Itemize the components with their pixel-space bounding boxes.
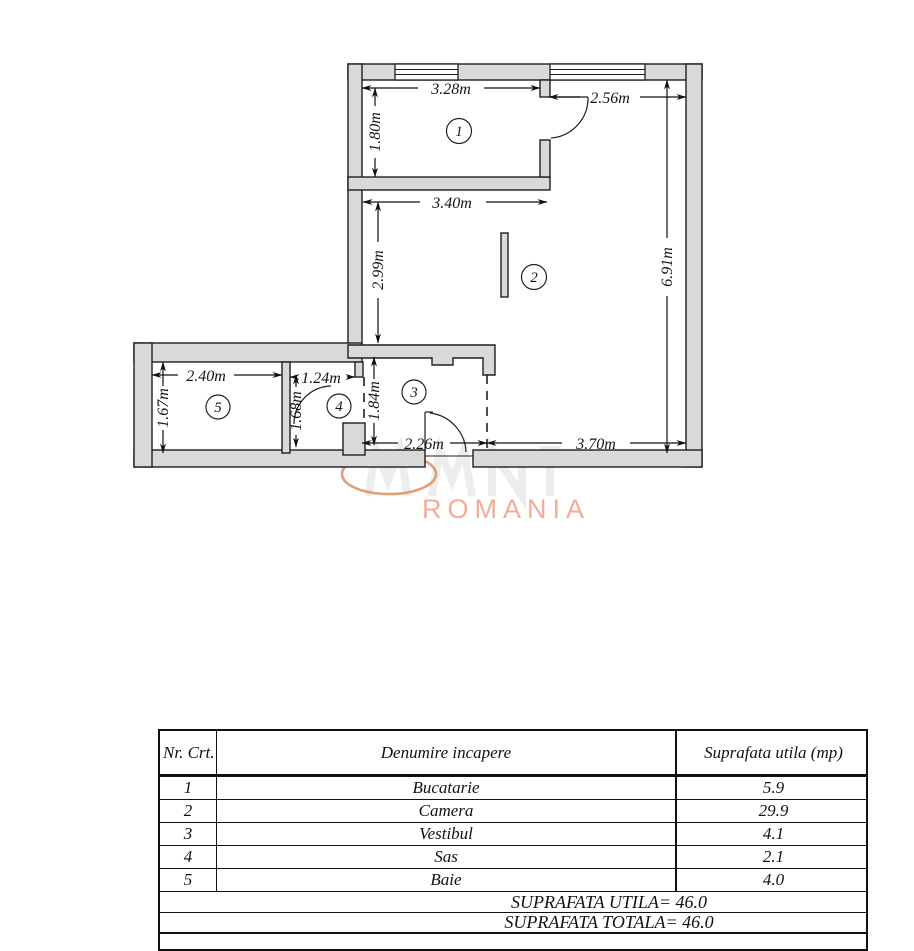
cell-name: Baie (217, 869, 677, 891)
cell-nr: 5 (160, 869, 217, 891)
room-label-2: 2 (522, 265, 547, 290)
door-kitchen (549, 97, 588, 138)
cell-nr: 4 (160, 846, 217, 868)
room-label-3: 3 (402, 380, 426, 404)
cell-name: Bucatarie (217, 777, 677, 799)
dim-vestibule-width: 2.26m (404, 436, 444, 453)
watermark-romania-text: ROMANIA (422, 494, 590, 524)
svg-text:3: 3 (409, 385, 418, 401)
header-area: Suprafata utila (mp) (677, 731, 870, 774)
cell-area: 4.0 (677, 869, 870, 891)
dim-living-width: 3.40m (431, 195, 472, 212)
dimension-lines (152, 80, 686, 453)
dim-sas-width: 1.24m (301, 370, 341, 387)
cell-name: Vestibul (217, 823, 677, 845)
svg-text:2: 2 (530, 270, 538, 286)
dim-right-side-depth: 6.91m (659, 247, 676, 287)
cell-area: 29.9 (677, 800, 870, 822)
dim-bath-depth: 1.67m (155, 388, 172, 428)
svg-text:1: 1 (455, 124, 463, 140)
cell-area: 4.1 (677, 823, 870, 845)
dim-bottom-right-width: 3.70m (575, 436, 616, 453)
cell-name: Sas (217, 846, 677, 868)
table-row: 1 Bucatarie 5.9 (160, 777, 866, 800)
cell-area: 5.9 (677, 777, 870, 799)
cell-name: Camera (217, 800, 677, 822)
total-totala-row: SUPRAFATA TOTALA= 46.0 (160, 913, 866, 934)
dim-entry-top-width: 2.56m (590, 90, 630, 107)
room-label-5: 5 (206, 395, 230, 419)
cell-area: 2.1 (677, 846, 870, 868)
table-row: 4 Sas 2.1 (160, 846, 866, 869)
dim-sas-depth: 1.68m (288, 391, 305, 431)
table-row: 3 Vestibul 4.1 (160, 823, 866, 846)
table-stub-row (160, 934, 866, 949)
header-nr: Nr. Crt. (160, 731, 217, 774)
dim-living-depth: 2.99m (370, 250, 387, 290)
table-header-row: Nr. Crt. Denumire incapere Suprafata uti… (160, 731, 866, 777)
cell-nr: 2 (160, 800, 217, 822)
table-row: 5 Baie 4.0 (160, 869, 866, 892)
window-top-right (550, 64, 645, 80)
svg-text:4: 4 (335, 399, 343, 415)
window-top-left (395, 64, 458, 80)
cell-nr: 3 (160, 823, 217, 845)
room-label-4: 4 (327, 394, 351, 418)
svg-text:5: 5 (214, 400, 222, 416)
room-label-1: 1 (447, 119, 472, 144)
dim-kitchen-width: 3.28m (430, 81, 471, 98)
dim-bath-width: 2.40m (186, 368, 226, 385)
floor-plan-page: { "floor_plan": { "room_labels": { "r1":… (0, 0, 914, 943)
cell-nr: 1 (160, 777, 217, 799)
table-row: 2 Camera 29.9 (160, 800, 866, 823)
area-table: Nr. Crt. Denumire incapere Suprafata uti… (158, 729, 868, 951)
dim-kitchen-depth: 1.80m (367, 112, 384, 152)
dim-vestibule-depth: 1.84m (366, 381, 383, 421)
header-name: Denumire incapere (217, 731, 677, 774)
total-utila-row: SUPRAFATA UTILA= 46.0 (160, 892, 866, 913)
floor-plan-drawing: 3.28m 2.56m 1.80m 3.40m 2.99m 6.91m 2.40… (0, 0, 914, 700)
